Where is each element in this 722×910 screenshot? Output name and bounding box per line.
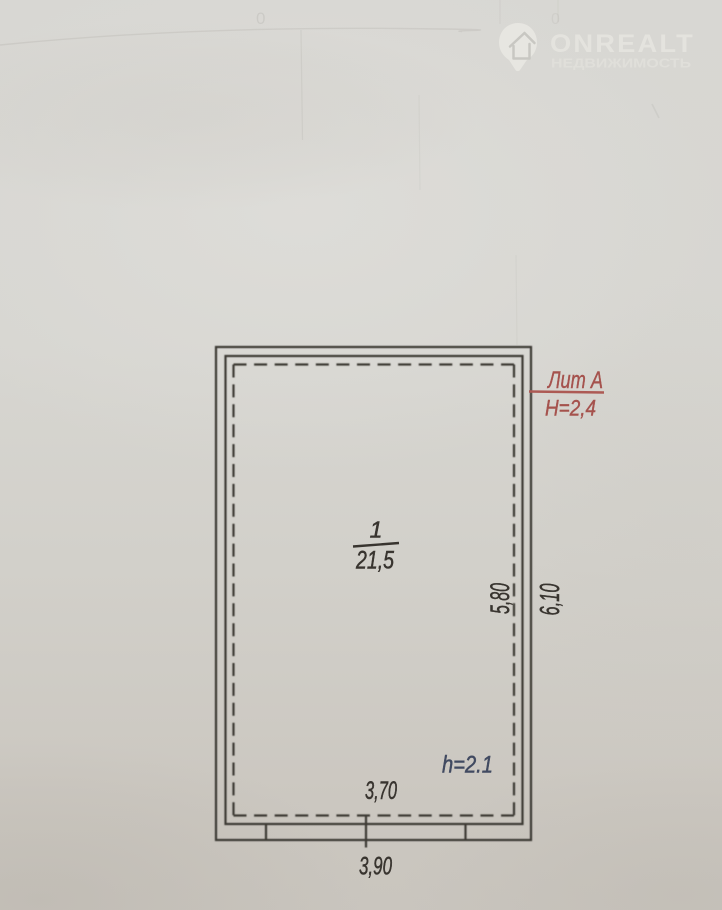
svg-text:h=2.1: h=2.1	[442, 752, 493, 779]
svg-text:0: 0	[551, 11, 560, 28]
svg-text:3,70: 3,70	[365, 777, 397, 805]
svg-text:Лит А: Лит А	[546, 367, 603, 394]
svg-text:1: 1	[370, 517, 383, 543]
svg-text:5,80: 5,80	[485, 583, 515, 614]
svg-text:НЕДВИЖИМОСТЬ: НЕДВИЖИМОСТЬ	[551, 56, 691, 71]
svg-text:6,10: 6,10	[534, 583, 565, 615]
svg-text:21,5: 21,5	[355, 547, 394, 575]
svg-text:0: 0	[256, 9, 265, 28]
svg-text:ONREALT: ONREALT	[550, 30, 695, 58]
svg-text:3,90: 3,90	[359, 853, 392, 881]
svg-text:Н=2,4: Н=2,4	[545, 396, 596, 421]
